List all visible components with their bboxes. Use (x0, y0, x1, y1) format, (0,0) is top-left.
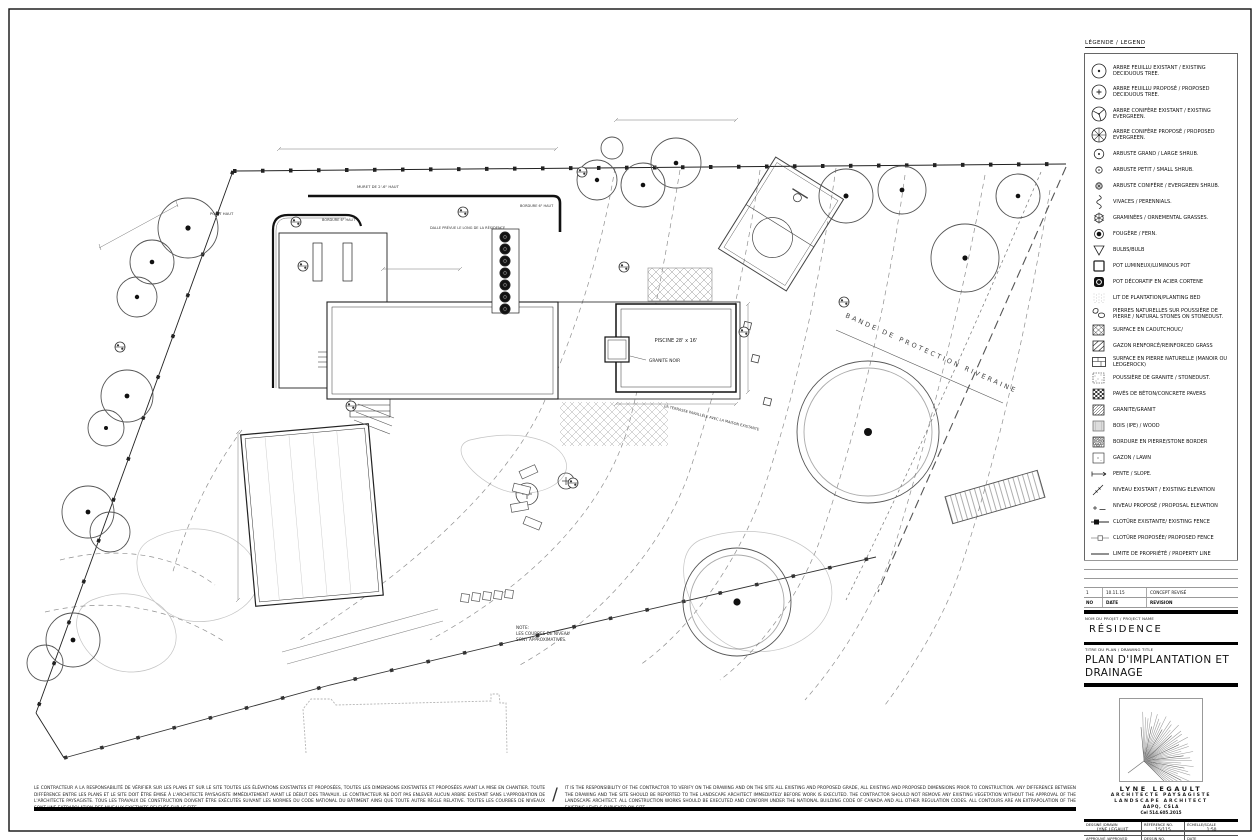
drawn-label: DESSINÉ /DRAWN (1086, 823, 1139, 827)
fan-logo-icon (1120, 699, 1202, 781)
riverine-band: BANDE DE PROTECTION RIVERAINE (836, 167, 1066, 600)
stone-walkway (945, 470, 1045, 523)
lawn-icon (1090, 450, 1110, 466)
pot-corten-icon (1090, 274, 1110, 290)
legend-item-slope: PENTE / SLOPE. (1088, 466, 1236, 482)
legend-item-fence-proposed: CLOTÛRE PROPOSÉE/ PROPOSED FENCE (1088, 530, 1236, 546)
legend-item-pavers: PAVÉS DE BÉTON/CONCRETE PAVERS (1088, 386, 1236, 402)
legend-item-label: BOIS (IPE) / WOOD (1113, 423, 1160, 429)
legend-item-grasses: GRAMINÉES / ORNEMENTAL GRASSES. (1088, 210, 1236, 226)
riverine-band-label: BANDE DE PROTECTION RIVERAINE (844, 312, 1018, 395)
legend-panel: LÉGENDE / LEGEND ARBRE FEUILLU EXISTANT … (1084, 29, 1238, 561)
legend-item-bulb: BULBS/BULB (1088, 242, 1236, 258)
drawing-title-label: TITRE DU PLAN / DRAWING TITLE (1085, 647, 1238, 652)
legend-item-stone-slab: SURFACE EN PIERRE NATURELLE (MANOIR OU L… (1088, 354, 1236, 370)
legend-item-label: NIVEAU EXISTANT / EXISTING ELEVATION (1113, 487, 1215, 493)
pool (616, 304, 736, 392)
revision-header-no: NO (1084, 600, 1102, 605)
architect-block: LYNE LEGAULT ARCHITECTE PAYSAGISTE LANDS… (1084, 785, 1238, 815)
approved-cell: APPROUVÉ /APPROVED LYNE LEGAULT (1084, 836, 1141, 840)
project-name-label: NOM DU PROJET / PROJECT NAME (1085, 616, 1238, 621)
elevation-proposed-icon (1090, 498, 1110, 514)
legend-item-pot-corten: POT DÉCORATIF EN ACIER CORTENE (1088, 274, 1236, 290)
divider-bar (1084, 642, 1238, 646)
contour-lines (45, 168, 1050, 705)
revision-row-empty (1084, 570, 1238, 579)
fence-proposed-icon (1090, 530, 1110, 546)
contour-note-1: NOTE: (516, 625, 529, 630)
planting-bed-icon (1090, 290, 1110, 306)
spa (605, 337, 629, 362)
border-label: BORDURE 6" HAUT (322, 218, 356, 222)
legend-item-label: FOUGÈRE / FERN. (1113, 231, 1157, 237)
divider-bar (1084, 610, 1238, 614)
divider-bar (1084, 683, 1238, 687)
legend-item-label: GRAMINÉES / ORNEMENTAL GRASSES. (1113, 215, 1208, 221)
legend-item-elevation-existing: NIVEAU EXISTANT / EXISTING ELEVATION (1088, 482, 1236, 498)
legend-item-label: POT DÉCORATIF EN ACIER CORTENE (1113, 279, 1203, 285)
revision-header-row: NO DATE REVISION (1084, 598, 1238, 608)
legend-item-label: CLOTÛRE PROPOSÉE/ PROPOSED FENCE (1113, 535, 1214, 541)
legend-item-label: ARBRE FEUILLU EXISTANT / EXISTING DECIDU… (1113, 65, 1234, 77)
grasses-icon (1090, 210, 1110, 226)
natural-stones-icon (1090, 306, 1110, 322)
legend-item-label: GAZON / LAWN (1113, 455, 1151, 461)
legend-item-label: PENTE / SLOPE. (1113, 471, 1151, 477)
pot-luminous-icon (1090, 258, 1110, 274)
border-label-2: BORDURE 6" HAUT (520, 204, 554, 208)
legend-item-label: BORDURE EN PIERRE/STONE BORDER (1113, 439, 1207, 445)
revision-desc: CONCEPT REVISÉ (1146, 588, 1238, 597)
legend-item-natural-stones: PIERRES NATURELLES SUR POUSSIÈRE DE PIER… (1088, 306, 1236, 322)
legend-item-planting-bed: LIT DE PLANTATION/PLANTING BED (1088, 290, 1236, 306)
drawing-sheet: BANDE DE PROTECTION RIVERAINE (0, 0, 1260, 840)
date-cell: DATE OCTOBRE 2015 (1184, 836, 1238, 840)
legend-item-shrub-evergreen: ARBUSTE CONIFÈRE / EVERGREEN SHRUB. (1088, 178, 1236, 194)
slab-label: DALLE PRÉVUE LE LONG DE LA RÉSIDENCE (430, 225, 505, 230)
revision-header-date: DATE (1102, 598, 1146, 607)
site-plan-drawing: BANDE DE PROTECTION RIVERAINE (0, 0, 1260, 840)
wall-label: MURET DE 2'-6" HAUT (357, 184, 400, 189)
scale-label: ÉCHELLE/SCALE (1187, 823, 1236, 827)
legend-item-shrub-large: ARBUSTE GRAND / LARGE SHRUB. (1088, 146, 1236, 162)
legend-item-perennials: VIVACES / PERENNIALS. (1088, 194, 1236, 210)
legend-box: ARBRE FEUILLU EXISTANT / EXISTING DECIDU… (1084, 53, 1238, 561)
neighbour-house-outline (303, 694, 507, 753)
driveway (282, 609, 443, 664)
legend-item-label: POUSSIÈRE DE GRANITE / STONEDUST. (1113, 375, 1210, 381)
rubber-surface-icon (1090, 322, 1110, 338)
contour-note-3: SONT APPROXIMATIVES. (516, 637, 566, 642)
legend-item-label: ARBRE CONIFÈRE EXISTANT / EXISTING EVERG… (1113, 108, 1234, 120)
revision-table: 1 10.11.15 CONCEPT REVISÉ NO DATE REVISI… (1084, 560, 1238, 608)
pool-label: PISCINE 28' x 16' (655, 338, 698, 344)
high-point-label: POINT HAUT (210, 211, 234, 216)
legend-item-label: SURFACE EN CAOUTCHOUC/ (1113, 327, 1183, 333)
project-name: RÉSIDENCE (1089, 624, 1238, 635)
property-lines (36, 164, 1066, 758)
legend-item-reinforced-grass: GAZON RENFORCÉ/REINFORCED GRASS (1088, 338, 1236, 354)
fence-existing-icon (1090, 514, 1110, 530)
bulb-icon (1090, 242, 1110, 258)
planting-beds (77, 435, 832, 672)
info-table: DESSINÉ /DRAWN LYNE LEGAULT RÉFÉRENCE NO… (1084, 819, 1238, 840)
revision-header-desc: REVISION (1146, 598, 1238, 607)
terrace (241, 424, 384, 607)
legend-item-label: POT LUMINEUX/LUMINOUS POT (1113, 263, 1190, 269)
reference-label: RÉFÉRENCE NO. (1144, 823, 1182, 827)
scale-cell: ÉCHELLE/SCALE 1:50 (1184, 822, 1238, 835)
slope-icon (1090, 466, 1110, 482)
tree-deciduous-existing-icon (1090, 63, 1110, 79)
tree-evergreen-proposed-icon (1090, 127, 1110, 143)
tree-deciduous-proposed-icon (1090, 84, 1110, 100)
legend-item-pot-luminous: POT LUMINEUX/LUMINOUS POT (1088, 258, 1236, 274)
architect-logo (1119, 698, 1203, 782)
shrub-small-icon (1090, 162, 1110, 178)
legend-item-fern: FOUGÈRE / FERN. (1088, 226, 1236, 242)
disclaimer-bar (34, 807, 1076, 811)
legend-title: LÉGENDE / LEGEND (1085, 40, 1145, 48)
legend-item-tree-deciduous-proposed: ARBRE FEUILLU PROPOSÉ / PROPOSED DECIDUO… (1088, 82, 1236, 104)
title-block: 1 10.11.15 CONCEPT REVISÉ NO DATE REVISI… (1084, 560, 1238, 840)
legend-item-label: LIT DE PLANTATION/PLANTING BED (1113, 295, 1200, 301)
legend-item-label: GAZON RENFORCÉ/REINFORCED GRASS (1113, 343, 1213, 349)
elevation-existing-icon (1090, 482, 1110, 498)
stone-slab-icon (1090, 354, 1110, 370)
architect-phone: Cel 514.605.2015 (1084, 810, 1238, 815)
legend-item-label: ARBRE CONIFÈRE PROPOSÉ / PROPOSED EVERGR… (1113, 129, 1234, 141)
legend-item-label: VIVACES / PERENNIALS. (1113, 199, 1172, 205)
pool-material-label: GRANITE NOIR (649, 358, 680, 364)
perennials-icon (1090, 194, 1110, 210)
drawing-title: PLAN D'IMPLANTATION ET DRAINAGE (1085, 654, 1238, 680)
legend-item-wood: BOIS (IPE) / WOOD (1088, 418, 1236, 434)
legend-item-label: NIVEAU PROPOSÉ / PROPOSAL ELEVATION (1113, 503, 1218, 509)
legend-item-granite: GRANITE/GRANIT (1088, 402, 1236, 418)
legend-item-shrub-small: ARBUSTE PETIT / SMALL SHRUB. (1088, 162, 1236, 178)
wood-icon (1090, 418, 1110, 434)
revision-row: 1 10.11.15 CONCEPT REVISÉ (1084, 588, 1238, 598)
granite-icon (1090, 402, 1110, 418)
sport-court (718, 157, 843, 291)
fern-icon (1090, 226, 1110, 242)
revision-date: 10.11.15 (1102, 588, 1146, 597)
scale-value: 1:50 (1187, 828, 1236, 833)
terrace-note: LA TERRASSE PARALLÈLE AVEC LA MAISON EXI… (664, 403, 761, 432)
legend-item-lawn: GAZON / LAWN (1088, 450, 1236, 466)
reinforced-grass-icon (1090, 338, 1110, 354)
legend-item-label: GRANITE/GRANIT (1113, 407, 1156, 413)
drawn-value: LYNE LEGAULT (1086, 828, 1139, 833)
stonedust-icon (1090, 370, 1110, 386)
legend-item-label: BULBS/BULB (1113, 247, 1144, 253)
shrub-large-icon (1090, 146, 1110, 162)
legend-item-rubber-surface: SURFACE EN CAOUTCHOUC/ (1088, 322, 1236, 338)
legend-item-stone-border: BORDURE EN PIERRE/STONE BORDER (1088, 434, 1236, 450)
legend-item-label: PAVÉS DE BÉTON/CONCRETE PAVERS (1113, 391, 1206, 397)
legend-item-tree-deciduous-existing: ARBRE FEUILLU EXISTANT / EXISTING DECIDU… (1088, 60, 1236, 82)
info-row: APPROUVÉ /APPROVED LYNE LEGAULT DESSIN N… (1084, 836, 1238, 840)
tree-evergreen-existing-icon (1090, 106, 1110, 122)
revision-row-empty (1084, 579, 1238, 588)
legend-item-tree-evergreen-proposed: ARBRE CONIFÈRE PROPOSÉ / PROPOSED EVERGR… (1088, 125, 1236, 147)
drawn-cell: DESSINÉ /DRAWN LYNE LEGAULT (1084, 822, 1141, 835)
shrub-evergreen-icon (1090, 178, 1110, 194)
stone-border-icon (1090, 434, 1110, 450)
architect-name: LYNE LEGAULT (1084, 785, 1238, 793)
legend-item-label: ARBUSTE GRAND / LARGE SHRUB. (1113, 151, 1199, 157)
legend-item-fence-existing: CLOTÛRE EXISTANTE/ EXISTING FENCE (1088, 514, 1236, 530)
legend-item-label: PIERRES NATURELLES SUR POUSSIÈRE DE PIER… (1113, 308, 1234, 320)
legend-item-label: ARBUSTE PETIT / SMALL SHRUB. (1113, 167, 1194, 173)
trees (27, 137, 1040, 681)
legend-item-label: ARBUSTE CONIFÈRE / EVERGREEN SHRUB. (1113, 183, 1219, 189)
pavers-icon (1090, 386, 1110, 402)
drawing-no-cell: DESSIN NO. 2/4 (1141, 836, 1184, 840)
legend-item-label: SURFACE EN PIERRE NATURELLE (MANOIR OU L… (1113, 356, 1234, 368)
contour-note-2: LES COURBES DE NIVEAU (516, 631, 570, 636)
legend-item-tree-evergreen-existing: ARBRE CONIFÈRE EXISTANT / EXISTING EVERG… (1088, 103, 1236, 125)
revision-row-empty (1084, 561, 1238, 570)
stepping-stones (460, 465, 541, 603)
reference-value: 15/115 (1144, 828, 1182, 833)
legend-item-label: ARBRE FEUILLU PROPOSÉ / PROPOSED DECIDUO… (1113, 86, 1234, 98)
legend-item-label: CLOTÛRE EXISTANTE/ EXISTING FENCE (1113, 519, 1210, 525)
legend-item-elevation-proposed: NIVEAU PROPOSÉ / PROPOSAL ELEVATION (1088, 498, 1236, 514)
legend-item-stonedust: POUSSIÈRE DE GRANITE / STONEDUST. (1088, 370, 1236, 386)
revision-no: 1 (1084, 590, 1102, 595)
reference-cell: RÉFÉRENCE NO. 15/115 (1141, 822, 1184, 835)
legend-item-label: LIMITE DE PROPRIÉTÉ / PROPERTY LINE (1113, 551, 1211, 557)
info-row: DESSINÉ /DRAWN LYNE LEGAULT RÉFÉRENCE NO… (1084, 822, 1238, 836)
